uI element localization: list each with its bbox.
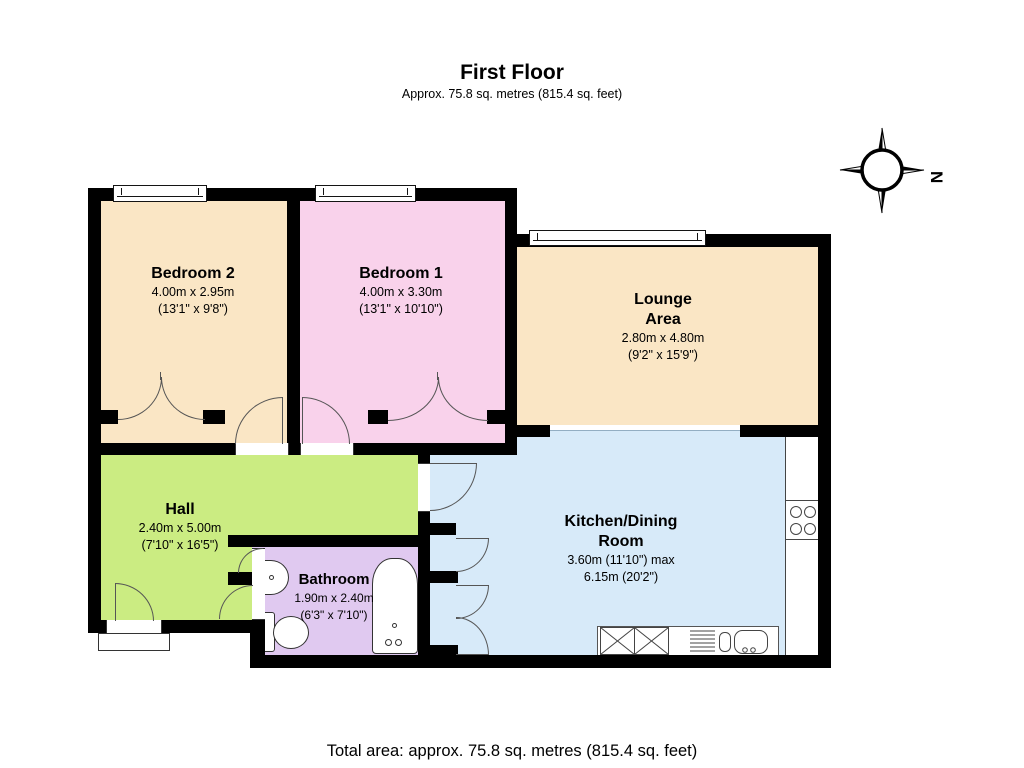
compass-rose-icon: N xyxy=(838,122,953,222)
wall-bedroom-divider xyxy=(287,188,300,455)
compass-north-label: N xyxy=(927,171,946,183)
compass: N xyxy=(838,122,953,222)
bedroom1-label: Bedroom 1 4.00m x 3.30m (13'1" x 10'10") xyxy=(311,264,491,317)
bedroom1-dim-imperial: (13'1" x 10'10") xyxy=(311,301,491,318)
lounge-window xyxy=(529,230,706,246)
wall-bottom-exterior xyxy=(250,655,831,668)
bedroom1-name: Bedroom 1 xyxy=(311,264,491,284)
hall-dim-metric: 2.40m x 5.00m xyxy=(95,520,265,537)
wall-bedrooms-bottom-right xyxy=(352,443,517,455)
wall-bathroom-left-lower xyxy=(252,618,265,655)
entrance-step xyxy=(98,633,170,651)
wall-wardrobe1-stub-right xyxy=(487,410,505,424)
kitchen-dim-metric: 3.60m (11'10") max xyxy=(531,552,711,569)
kitchen-name: Kitchen/Dining Room xyxy=(556,512,686,552)
hob-icon xyxy=(786,500,819,540)
sink-basin-small-icon xyxy=(720,633,731,652)
bedroom2-label: Bedroom 2 4.00m x 2.95m (13'1" x 9'8") xyxy=(103,264,283,317)
wall-bedrooms-bottom-left xyxy=(101,443,235,455)
hall-label: Hall 2.40m x 5.00m (7'10" x 16'5") xyxy=(95,500,265,553)
wall-wardrobe1-stub-left xyxy=(368,410,388,424)
title-block: First Floor Approx. 75.8 sq. metres (815… xyxy=(0,60,1024,102)
page-title: First Floor xyxy=(0,60,1024,86)
bathtub-drain-icon xyxy=(392,623,397,628)
lounge-dim-metric: 2.80m x 4.80m xyxy=(588,330,738,347)
hall-name: Hall xyxy=(95,500,265,520)
bathtub-tap-icon xyxy=(395,639,402,646)
wall-lounge-stub-left xyxy=(505,425,550,437)
bathroom-dim-metric: 1.90m x 2.40m xyxy=(264,590,404,607)
total-area-text: Total area: approx. 75.8 sq. metres (815… xyxy=(0,742,1024,761)
bedroom2-door-opening xyxy=(235,443,289,455)
kitchen-units-icon xyxy=(597,626,779,656)
wall-hall-kitchen xyxy=(418,510,430,655)
wardrobe1-door-meet-line xyxy=(437,372,438,380)
kitchen-right-counter xyxy=(785,437,818,655)
wall-cupboard-stub-3 xyxy=(430,645,458,655)
kitchen-label: Kitchen/Dining Room 3.60m (11'10") max 6… xyxy=(556,512,686,585)
bathroom-dim-imperial: (6'3" x 7'10") xyxy=(264,607,404,624)
hall-kitchen-door-opening xyxy=(418,463,430,512)
openplan-boundary-line xyxy=(550,430,740,431)
bedroom1-dim-metric: 4.00m x 3.30m xyxy=(311,284,491,301)
wall-left-exterior xyxy=(88,188,101,633)
wall-bedroom1-lounge xyxy=(505,188,517,455)
lounge-label: Lounge Area 2.80m x 4.80m (9'2" x 15'9") xyxy=(623,290,703,363)
wall-hall-kitchen-jamb xyxy=(418,455,430,463)
bedroom2-dim-imperial: (13'1" x 9'8") xyxy=(103,301,283,318)
bathtub-tap-icon xyxy=(385,639,392,646)
bedroom2-name: Bedroom 2 xyxy=(103,264,283,284)
bathroom-label: Bathroom 1.90m x 2.40m (6'3" x 7'10") xyxy=(264,570,404,623)
bathroom-name: Bathroom xyxy=(264,570,404,590)
wall-wardrobe2-stub-right xyxy=(203,410,225,424)
floorplan-canvas: First Floor Approx. 75.8 sq. metres (815… xyxy=(0,0,1024,768)
bedroom1-window xyxy=(315,185,416,202)
wall-cupboard-stub-2 xyxy=(430,571,458,583)
wardrobe2-door-meet-line xyxy=(160,372,161,380)
hall-dim-imperial: (7'10" x 16'5") xyxy=(95,537,265,554)
kitchen-bottom-counter xyxy=(597,626,779,656)
wall-cupboard-stub-1 xyxy=(430,523,456,535)
wall-right-exterior xyxy=(818,234,831,668)
entrance-door-opening xyxy=(106,620,162,633)
lounge-dim-imperial: (9'2" x 15'9") xyxy=(588,347,738,364)
kitchen-floor-upper xyxy=(517,437,818,455)
wall-lounge-stub-right xyxy=(740,425,831,437)
page-subtitle: Approx. 75.8 sq. metres (815.4 sq. feet) xyxy=(0,86,1024,102)
bedroom2-window xyxy=(113,185,207,202)
hob-burners-icon xyxy=(786,501,819,541)
bedroom2-dim-metric: 4.00m x 2.95m xyxy=(103,284,283,301)
wall-wardrobe2-stub-left xyxy=(101,410,118,424)
bedroom1-door-opening xyxy=(300,443,354,455)
kitchen-dim-imperial: 6.15m (20'2") xyxy=(531,569,711,586)
lounge-name: Lounge Area xyxy=(623,290,703,330)
